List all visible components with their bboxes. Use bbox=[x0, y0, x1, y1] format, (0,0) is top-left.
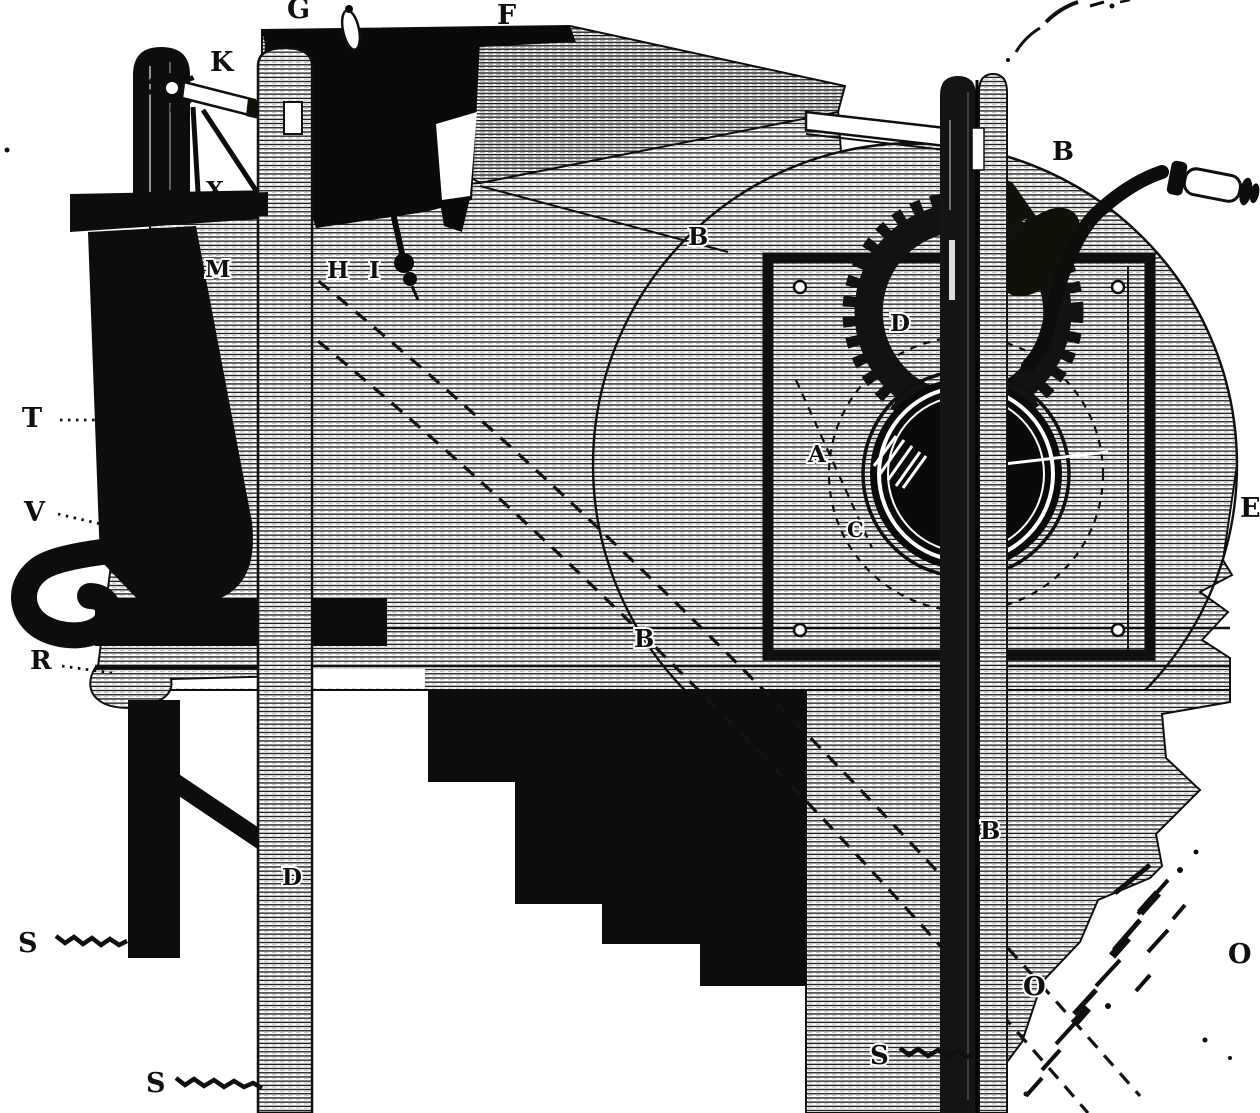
hopper-edge-bar bbox=[140, 192, 268, 220]
part-label-f: F bbox=[497, 0, 516, 31]
part-label-v: V bbox=[23, 497, 46, 528]
post-mortise bbox=[284, 102, 302, 134]
part-label-o-panel: O bbox=[1023, 972, 1046, 1002]
stray-dot bbox=[5, 148, 10, 153]
part-label-d-gear: D bbox=[890, 310, 910, 337]
part-label-c-dashed: C bbox=[847, 517, 864, 542]
part-label-k: K bbox=[210, 47, 235, 78]
part-label-x: X bbox=[206, 177, 224, 204]
part-label-h: H bbox=[327, 257, 349, 284]
left-leg bbox=[128, 700, 180, 958]
part-label-i: I bbox=[369, 257, 380, 284]
engraving-figure: G F K X M H I B B T V R B D A C D S S S … bbox=[0, 0, 1260, 1113]
part-label-r: R bbox=[30, 646, 52, 676]
part-label-b-crank: B bbox=[1052, 137, 1074, 167]
part-label-e-edge: E bbox=[1240, 493, 1260, 524]
part-label-d-post: D bbox=[282, 864, 302, 891]
machine-engraving: G F K X M H I B B T V R B D A C D S S S … bbox=[0, 0, 1260, 1113]
part-label-a-drum: A bbox=[807, 441, 827, 468]
rear-post-slot bbox=[972, 128, 984, 170]
part-label-b-belt-mid: B bbox=[634, 624, 654, 653]
part-label-g: G bbox=[287, 0, 310, 25]
chute-base-strip bbox=[95, 598, 387, 646]
part-label-t: T bbox=[22, 403, 42, 434]
part-label-s-left: S bbox=[18, 928, 38, 959]
part-label-b-casing: B bbox=[688, 222, 708, 251]
part-label-s-lower: S bbox=[146, 1068, 166, 1099]
part-label-s-mid: S bbox=[870, 1041, 889, 1071]
part-label-m: M bbox=[205, 256, 230, 283]
part-label-o-edge: O bbox=[1228, 939, 1252, 970]
part-label-b-belt-low: B bbox=[980, 816, 1000, 845]
rear-posts bbox=[940, 74, 1007, 1113]
